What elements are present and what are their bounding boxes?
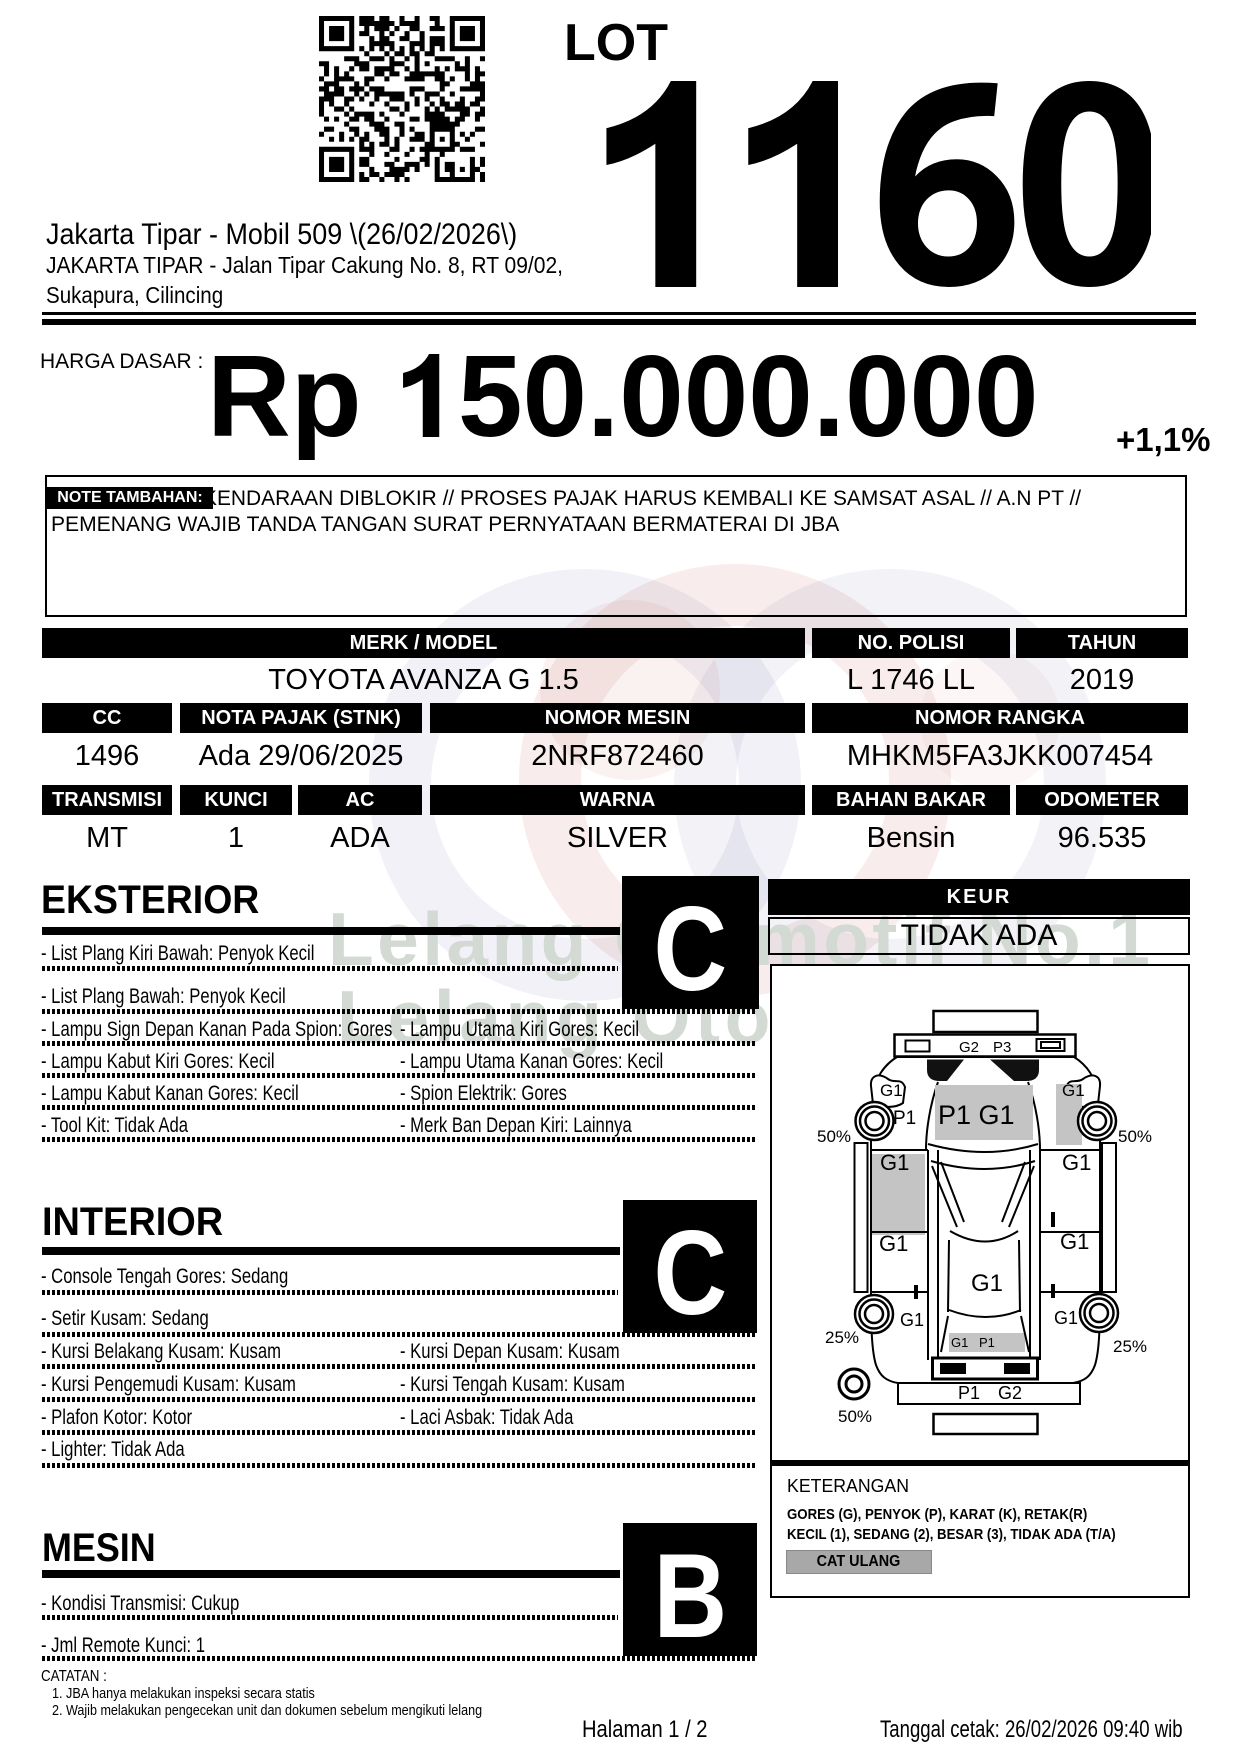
svg-text:P1: P1 [893, 1108, 916, 1129]
svg-text:G1: G1 [1054, 1308, 1078, 1328]
svg-text:25%: 25% [825, 1328, 859, 1347]
svg-text:50%: 50% [838, 1407, 872, 1426]
svg-text:25%: 25% [1113, 1337, 1147, 1356]
svg-text:G1: G1 [880, 1081, 903, 1100]
svg-text:50%: 50% [1118, 1127, 1152, 1146]
svg-text:G2: G2 [998, 1383, 1022, 1403]
svg-text:50%: 50% [817, 1127, 851, 1146]
svg-text:G2: G2 [959, 1039, 979, 1056]
svg-text:P1 G1: P1 G1 [938, 1100, 1015, 1130]
svg-text:G1: G1 [879, 1231, 908, 1256]
svg-text:P1: P1 [979, 1335, 995, 1350]
svg-text:P1: P1 [958, 1383, 980, 1403]
svg-text:G1: G1 [1060, 1229, 1089, 1254]
svg-text:G1: G1 [971, 1270, 1003, 1297]
svg-text:G1: G1 [900, 1310, 924, 1330]
svg-text:G1: G1 [951, 1335, 968, 1350]
svg-text:G1: G1 [1062, 1150, 1091, 1175]
svg-text:G1: G1 [880, 1150, 909, 1175]
svg-text:P3: P3 [993, 1039, 1011, 1056]
svg-text:G1: G1 [1062, 1081, 1085, 1100]
